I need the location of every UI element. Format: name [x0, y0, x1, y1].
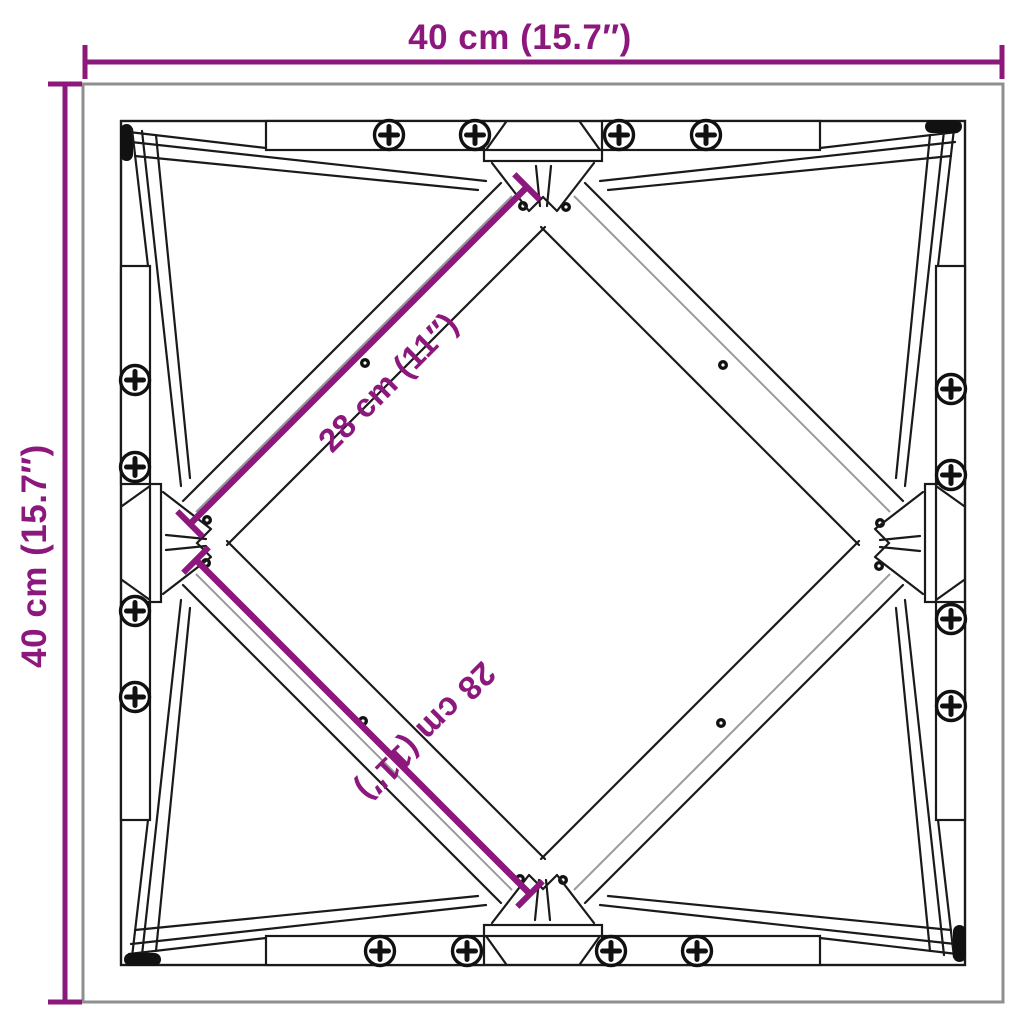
brace-board-upper-left: [183, 183, 545, 545]
frame-outline: [83, 84, 1003, 1002]
lower-brace-dimension-line: [196, 560, 530, 894]
frame-side-right: [875, 120, 966, 957]
frame-sides: [120, 120, 966, 966]
width-dimension-label: 40 cm (15.7″): [408, 18, 632, 57]
brace-board-upper-right: [541, 183, 903, 545]
frame-diagram-canvas: 40 cm (15.7″) 40 cm (15.7″) 28 cm (11″) …: [0, 0, 1024, 1024]
frame-side-left: [121, 129, 212, 966]
height-dimension: 40 cm (15.7″): [15, 84, 82, 1002]
cross-braces: [183, 183, 903, 903]
height-dimension-label: 40 cm (15.7″): [15, 444, 54, 668]
frame-outer-edge: [83, 84, 1003, 1002]
lower-brace-dimension: 28 cm (11″): [183, 547, 542, 906]
frame-inner-edge: [121, 121, 965, 965]
brace-board-lower-left: [183, 541, 545, 903]
frame-side-bottom: [129, 875, 966, 966]
upper-brace-dimension: 28 cm (11″): [177, 174, 539, 536]
width-dimension: 40 cm (15.7″): [85, 18, 1002, 79]
upper-brace-dimension-line: [190, 187, 527, 524]
brace-board-lower-right: [541, 541, 903, 903]
product-dimension-diagram: 40 cm (15.7″) 40 cm (15.7″) 28 cm (11″) …: [0, 0, 1024, 1024]
